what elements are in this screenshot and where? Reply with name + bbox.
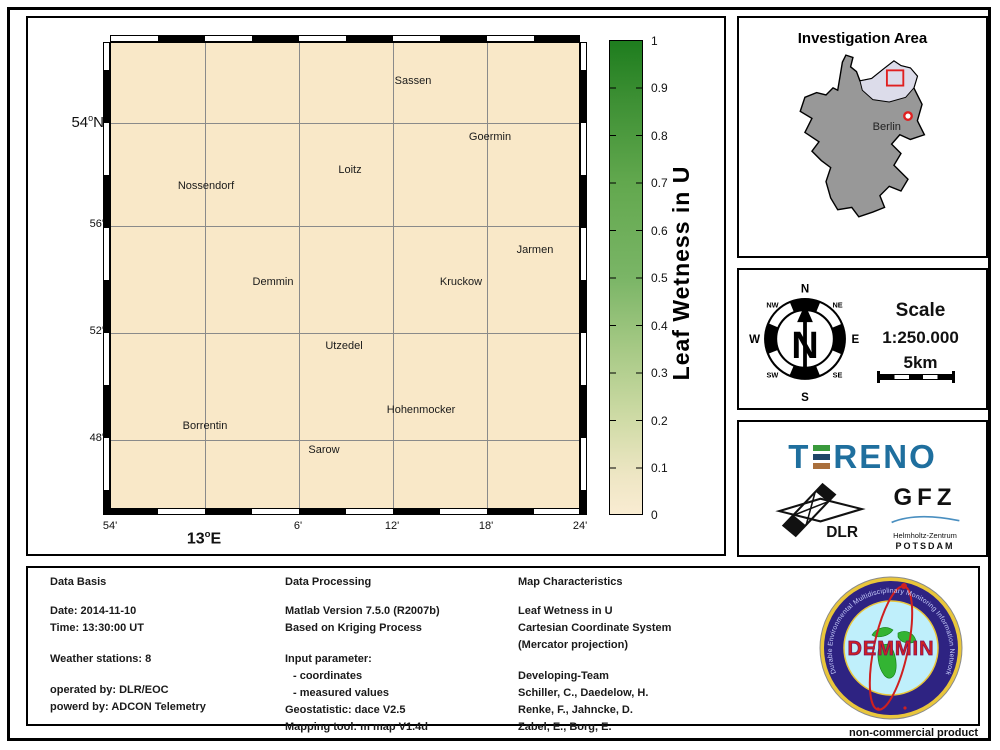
map-border-top (110, 35, 580, 42)
tereno-ebar-navy (813, 454, 830, 460)
info-line: Cartesian Coordinate System (518, 620, 763, 637)
info-col-map-characteristics: Map Characteristics Leaf Wetness in U Ca… (518, 574, 763, 750)
scale-block: Scale 1:250.000 5km (857, 300, 984, 373)
berlin-marker (904, 112, 911, 119)
demmin-star (903, 706, 906, 709)
info-group: Leaf Wetness in U Cartesian Coordinate S… (518, 603, 763, 654)
colorbar-tick-label: 1 (651, 34, 658, 48)
colorbar-ticks-right (636, 41, 642, 514)
gfz-wordmark: GFZ (881, 484, 969, 512)
x-tick-54: 54' (90, 520, 130, 532)
gfz-arc (883, 513, 968, 525)
info-group: Date: 2014-11-10 Time: 13:30:00 UT (50, 603, 275, 637)
info-line: (Mercator projection) (518, 637, 763, 654)
investigation-area-title: Investigation Area (739, 30, 986, 47)
colorbar-tick-label: 0.5 (651, 271, 668, 285)
compass-label-se: SE (833, 371, 843, 380)
scale-bar (879, 374, 953, 380)
info-line: Based on Kriging Process (285, 620, 515, 637)
grid-line (111, 226, 579, 227)
info-header: Data Processing (285, 574, 515, 591)
colorbar-tick-label: 0.4 (651, 319, 668, 333)
colorbar-tick-label: 0.7 (651, 176, 668, 190)
grid-line (111, 123, 579, 124)
info-line: Date: 2014-11-10 (50, 603, 275, 620)
place-label-sarow: Sarow (308, 444, 339, 456)
colorbar-ticks-left (610, 41, 616, 514)
info-header: Map Characteristics (518, 574, 763, 591)
gfz-city: POTSDAM (881, 541, 969, 551)
info-line: Mapping tool: m map V1.4d (285, 719, 515, 736)
place-label-demmin: Demmin (253, 276, 294, 288)
tereno-ebar-brown (813, 463, 830, 469)
demmin-title: DEMMIN (847, 638, 934, 660)
place-label-kruckow: Kruckow (440, 276, 482, 288)
info-group: Weather stations: 8 (50, 651, 275, 668)
y-main-number: 54 (71, 114, 88, 131)
y-main-direction: N (93, 114, 104, 131)
gfz-subtitle: Helmholtz-Zentrum (881, 531, 969, 540)
info-col-data-processing: Data Processing Matlab Version 7.5.0 (R2… (285, 574, 515, 750)
x-main-number: 13 (187, 530, 205, 547)
colorbar-tick-label: 0.6 (651, 224, 668, 238)
compass-label-ne: NE (832, 300, 842, 309)
x-tick-12: 12' (372, 520, 412, 532)
place-label-goermin: Goermin (469, 131, 511, 143)
tereno-letters-reno: RENO (833, 438, 936, 476)
grid-line (111, 440, 579, 441)
y-tick-56: 56' (78, 218, 104, 230)
info-header: Data Basis (50, 574, 275, 591)
place-label-utzedel: Utzedel (325, 340, 362, 352)
colorbar-tick-label: 0 (651, 508, 658, 522)
colorbar-tick-label: 0.9 (651, 81, 668, 95)
scale-distance: 5km (857, 353, 984, 373)
compass-rose: N N S W E NW NE SW SE (747, 278, 863, 404)
info-line: Input parameter: (285, 651, 515, 668)
scale-bar-cap (877, 371, 880, 383)
grid-line (487, 43, 488, 514)
place-label-loitz: Loitz (338, 164, 361, 176)
info-panel: Data Basis Date: 2014-11-10 Time: 13:30:… (26, 566, 980, 726)
x-tick-18: 18' (466, 520, 506, 532)
info-line: Leaf Wetness in U (518, 603, 763, 620)
compass-label-sw: SW (767, 371, 779, 380)
investigation-area-panel: Investigation Area Berlin (737, 16, 988, 258)
tereno-ebar-green (813, 445, 830, 451)
place-label-borrentin: Borrentin (183, 420, 228, 432)
grid-line (205, 43, 206, 514)
info-line: - coordinates (285, 668, 515, 685)
berlin-label: Berlin (873, 121, 901, 133)
scale-title: Scale (857, 300, 984, 322)
compass-label-w: W (749, 334, 760, 346)
tereno-letter-t: T (788, 438, 810, 476)
map-border-right (580, 42, 587, 515)
map-border-bottom (110, 508, 580, 515)
y-axis-main-label: 54oN (54, 113, 104, 131)
tereno-stylized-e (813, 445, 830, 469)
compass-scale-panel: N N S W E NW NE SW SE Scale 1:250.000 5k… (737, 268, 988, 410)
non-commercial-note: non-commercial product (849, 727, 978, 739)
compass-label-n: N (801, 284, 809, 296)
demmin-logo: Durable Environmental Multidisciplinary … (816, 573, 966, 723)
info-line: Weather stations: 8 (50, 651, 275, 668)
colorbar-title: Leaf Wetness in U (668, 123, 700, 423)
map-plot-area: Sassen Goermin Loitz Nossendorf Jarmen D… (110, 42, 580, 515)
place-label-hohenmocker: Hohenmocker (387, 404, 455, 416)
info-col-data-basis: Data Basis Date: 2014-11-10 Time: 13:30:… (50, 574, 275, 730)
place-label-nossendorf: Nossendorf (178, 180, 234, 192)
colorbar (609, 40, 643, 515)
tereno-logo: T RENO (739, 438, 986, 476)
info-line: Zabel, E., Borg, E. (518, 719, 763, 736)
colorbar-tick-label: 0.2 (651, 414, 668, 428)
dlr-logo: DLR (775, 476, 867, 540)
scale-bar-cap (952, 371, 955, 383)
grid-line (393, 43, 394, 514)
colorbar-tick-label: 0.1 (651, 461, 668, 475)
map-border-left (103, 42, 110, 515)
info-group: Matlab Version 7.5.0 (R2007b) Based on K… (285, 603, 515, 637)
compass-label-nw: NW (766, 300, 778, 309)
info-line: operated by: DLR/EOC (50, 682, 275, 699)
x-tick-24: 24' (560, 520, 600, 532)
compass-label-s: S (801, 392, 809, 404)
x-axis-main-label: 13oE (169, 529, 239, 548)
info-line: Matlab Version 7.5.0 (R2007b) (285, 603, 515, 620)
info-group: operated by: DLR/EOC powerd by: ADCON Te… (50, 682, 275, 716)
map-product-page: Sassen Goermin Loitz Nossendorf Jarmen D… (0, 0, 1000, 750)
dlr-wordmark: DLR (826, 524, 858, 540)
demmin-satellite (901, 583, 907, 589)
compass-arrow-shaft (803, 320, 807, 367)
place-label-sassen: Sassen (395, 75, 432, 87)
info-line: Time: 13:30:00 UT (50, 620, 275, 637)
logos-panel: T RENO DLR GFZ Helmholtz-Zentrum POTSDAM (737, 420, 988, 557)
colorbar-tick-label: 0.3 (651, 366, 668, 380)
info-group: Developing-Team Schiller, C., Daedelow, … (518, 668, 763, 736)
x-main-direction: E (211, 530, 222, 547)
germany-overview-map: Berlin (785, 48, 949, 252)
info-line: powerd by: ADCON Telemetry (50, 699, 275, 716)
grid-line (111, 333, 579, 334)
gfz-logo: GFZ Helmholtz-Zentrum POTSDAM (881, 484, 969, 551)
scale-ratio: 1:250.000 (857, 328, 984, 348)
place-label-jarmen: Jarmen (517, 244, 554, 256)
grid-line (299, 43, 300, 514)
demmin-star (876, 707, 879, 710)
colorbar-tick-label: 0.8 (651, 129, 668, 143)
dlr-fill-sw (783, 515, 806, 536)
info-line: Developing-Team (518, 668, 763, 685)
y-tick-48: 48' (78, 432, 104, 444)
main-map-panel: Sassen Goermin Loitz Nossendorf Jarmen D… (26, 16, 726, 556)
info-line: Schiller, C., Daedelow, H. (518, 685, 763, 702)
info-line: Renke, F., Jahncke, D. (518, 702, 763, 719)
info-line: - measured values (285, 685, 515, 702)
y-tick-52: 52' (78, 325, 104, 337)
info-group: Input parameter: - coordinates - measure… (285, 651, 515, 736)
info-line: Geostatistic: dace V2.5 (285, 702, 515, 719)
x-tick-6: 6' (278, 520, 318, 532)
